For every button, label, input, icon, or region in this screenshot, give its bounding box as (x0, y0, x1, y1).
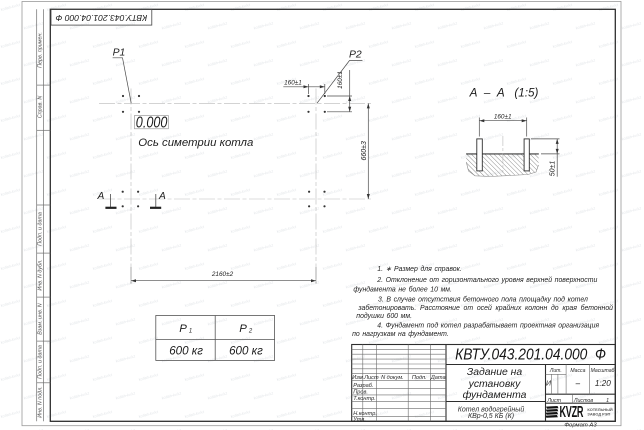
svg-text:P2: P2 (349, 50, 362, 61)
svg-text:Инв. N подл.: Инв. N подл. (37, 386, 43, 418)
svg-text:1: 1 (606, 398, 609, 404)
svg-text:P: P (239, 323, 247, 335)
svg-text:600 кг: 600 кг (169, 345, 203, 358)
svg-text:КВТУ.043.201.04.000 Ф: КВТУ.043.201.04.000 Ф (455, 347, 606, 364)
svg-text:фундамента: фундамента (463, 389, 527, 401)
svg-text:2: 2 (248, 329, 253, 335)
svg-text:P: P (179, 323, 187, 335)
svg-text:забетонировать. Расстояние от: забетонировать. Расстояние от осей крайн… (357, 304, 613, 312)
svg-text:Дата: Дата (430, 375, 446, 381)
svg-text:2. Отклонение от горизонтально: 2. Отклонение от горизонтального уровня … (376, 276, 597, 284)
svg-text:Подп. и дата: Подп. и дата (37, 212, 43, 246)
svg-text:160±1: 160±1 (284, 79, 302, 86)
svg-text:подушки 600 мм.: подушки 600 мм. (356, 312, 412, 320)
svg-text:Изм.Лист: Изм.Лист (352, 375, 379, 381)
svg-text:ЗАВОД РЭП: ЗАВОД РЭП (587, 412, 610, 417)
svg-text:А: А (158, 191, 166, 202)
svg-text:КВр-0,5 КБ (К): КВр-0,5 КБ (К) (468, 413, 514, 420)
svg-text:Инв. N дубл.: Инв. N дубл. (37, 259, 43, 290)
svg-text:Справ. N: Справ. N (37, 96, 43, 119)
svg-text:0.000: 0.000 (136, 114, 168, 132)
svg-text:Задание на: Задание на (467, 367, 523, 378)
svg-text:Пров.: Пров. (353, 390, 368, 396)
svg-text:P1: P1 (113, 48, 126, 59)
svg-text:N докум.: N докум. (381, 375, 404, 381)
svg-text:А – А (1:5): А – А (1:5) (469, 86, 539, 99)
svg-text:Ось симетрии котла: Ось симетрии котла (138, 137, 253, 149)
svg-text:Подп.: Подп. (412, 375, 427, 381)
svg-text:Взам. инв. N: Взам. инв. N (37, 303, 43, 335)
svg-text:–: – (575, 379, 581, 388)
svg-text:Масштаб: Масштаб (591, 368, 616, 374)
svg-text:1:20: 1:20 (595, 379, 611, 388)
svg-text:Подп. и дата: Подп. и дата (37, 345, 43, 379)
svg-text:Лит.: Лит. (549, 368, 562, 374)
svg-text:660±3: 660±3 (361, 141, 368, 161)
svg-text:3. В случае отсутствия бетонно: 3. В случае отсутствия бетонного пола пл… (378, 296, 588, 304)
svg-text:KVZR: KVZR (560, 402, 584, 420)
svg-text:Формат А3: Формат А3 (564, 423, 597, 429)
svg-text:1. ∗ Размер для справок.: 1. ∗ Размер для справок. (377, 265, 462, 273)
svg-text:50±1: 50±1 (549, 161, 556, 177)
svg-text:Масса: Масса (570, 368, 585, 374)
svg-text:Перв. примен.: Перв. примен. (37, 32, 43, 68)
svg-text:600 кг: 600 кг (229, 345, 263, 358)
svg-text:А: А (97, 191, 105, 202)
svg-text:4. Фундамент под котел разраба: 4. Фундамент под котел разрабатывает про… (377, 321, 599, 329)
svg-text:КВТУ.043.201.04.000 Ф: КВТУ.043.201.04.000 Ф (55, 13, 147, 23)
svg-text:по нагрузкам на фундамент.: по нагрузкам на фундамент. (352, 330, 449, 338)
svg-text:фундамента не более 10 мм.: фундамента не более 10 мм. (353, 285, 452, 293)
svg-text:Котел водогрейный: Котел водогрейный (458, 405, 525, 413)
svg-text:Т.контр.: Т.контр. (353, 396, 376, 402)
svg-text:Утв.: Утв. (352, 417, 366, 423)
svg-text:Разраб.: Разраб. (353, 383, 373, 389)
svg-text:160±1: 160±1 (494, 114, 512, 121)
svg-text:160±1: 160±1 (337, 71, 344, 89)
svg-text:1: 1 (189, 329, 192, 335)
svg-text:установку: установку (468, 379, 522, 390)
svg-text:2160±2: 2160±2 (211, 271, 234, 278)
